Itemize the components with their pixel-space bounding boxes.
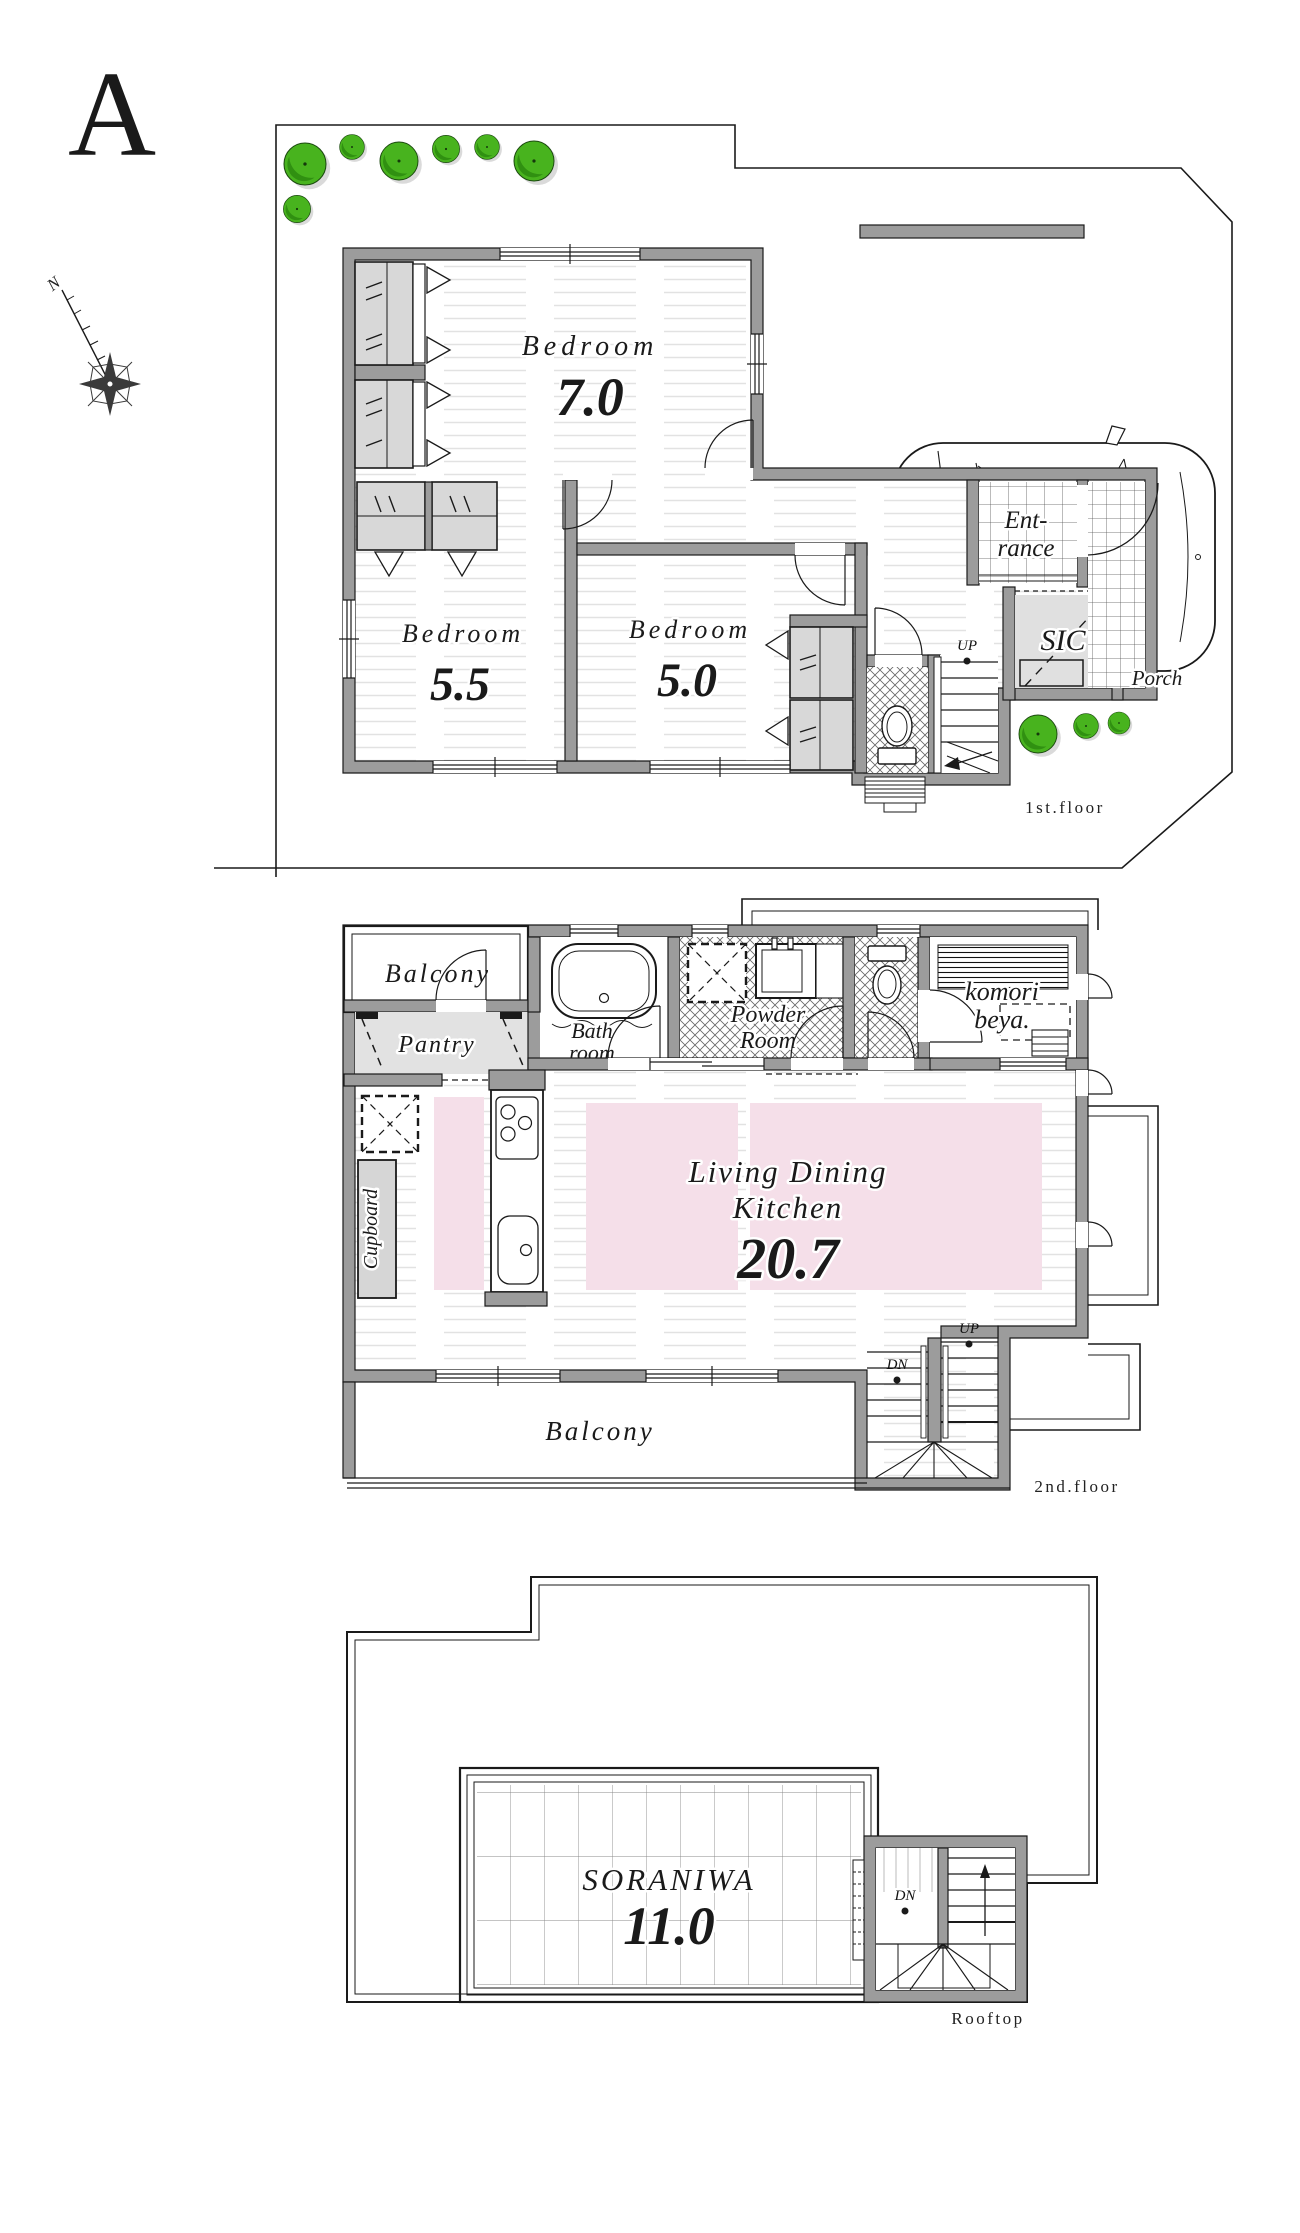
komori-label-1: komori: [965, 977, 1039, 1006]
soraniwa-size: 11.0: [623, 1896, 715, 1956]
staircase: UP: [934, 638, 998, 773]
powder-label-2: Room: [739, 1028, 796, 1054]
powder-label-1: Powder: [730, 1002, 806, 1028]
stairs-up-label: UP: [959, 1321, 979, 1337]
cupboard-label: Cupboard: [360, 1188, 382, 1269]
kitchen-counter: [485, 1070, 547, 1306]
bathroom: Bath room: [528, 937, 680, 1065]
bedroom50-size: 5.0: [657, 654, 717, 707]
powder-room: Powder Room: [680, 937, 855, 1058]
soraniwa-label: SORANIWA: [582, 1862, 755, 1897]
balcony-bottom-label: Balcony: [545, 1416, 654, 1446]
rooftop-plan: SORANIWA 11.0 DN Rooftop: [347, 1577, 1097, 2028]
second-floor-label: 2nd.floor: [1034, 1477, 1119, 1496]
fence-bar: [860, 225, 1084, 238]
stairs-dn-label: DN: [886, 1357, 909, 1373]
compass-icon: N: [43, 272, 141, 416]
balcony-top: Balcony: [344, 926, 542, 1012]
first-floor-label: 1st.floor: [1025, 798, 1105, 817]
sink-icon: [498, 1216, 538, 1284]
bedroom7-label: Bedroom: [522, 331, 659, 362]
washing-machine-icon: [362, 1096, 418, 1152]
pantry-label: Pantry: [397, 1032, 475, 1058]
vanity-icon: [756, 938, 843, 998]
sic-label: SIC: [1041, 624, 1087, 657]
entrance-label-1: Ent-: [1003, 507, 1047, 534]
floorplan-drawing: A N: [0, 0, 1300, 2233]
ldk-size: 20.7: [736, 1226, 841, 1291]
bedroom7-size: 7.0: [556, 367, 624, 427]
plan-title: A: [68, 47, 156, 182]
stairs-up-label: UP: [957, 638, 977, 654]
bedroom55-size: 5.5: [430, 658, 490, 711]
entrance-room: Ent- rance: [979, 482, 1077, 583]
first-floor-plan: UP Ent- rance SIC Porch: [214, 125, 1232, 877]
komori-label-2: beya.: [974, 1005, 1030, 1034]
balcony-top-label: Balcony: [385, 959, 491, 988]
washing-machine-icon: [688, 944, 746, 1002]
ldk-label-1: Living Dining: [687, 1154, 887, 1189]
bathtub-icon: [552, 944, 656, 1028]
ldk-label-2: Kitchen: [732, 1190, 843, 1225]
porch-label: Porch: [1131, 666, 1183, 690]
cupboard: Cupboard: [358, 1160, 396, 1298]
bedroom50-label: Bedroom: [629, 615, 751, 644]
floorplan-page: A N: [0, 0, 1300, 2233]
komori-beya-room: komori beya.: [918, 937, 1076, 1058]
bedroom55-label: Bedroom: [402, 619, 524, 648]
soraniwa-deck: SORANIWA 11.0: [460, 1768, 878, 2002]
entrance-label-2: rance: [998, 535, 1055, 562]
stove-icon: [496, 1097, 538, 1159]
stairs-dn-label: DN: [894, 1888, 917, 1904]
rooftop-label: Rooftop: [951, 2009, 1024, 2028]
rooftop-stairs: DN: [853, 1836, 1027, 2002]
second-floor-plan: Balcony Pantry Bath roo: [343, 899, 1158, 1496]
compass-north-label: N: [43, 272, 66, 296]
